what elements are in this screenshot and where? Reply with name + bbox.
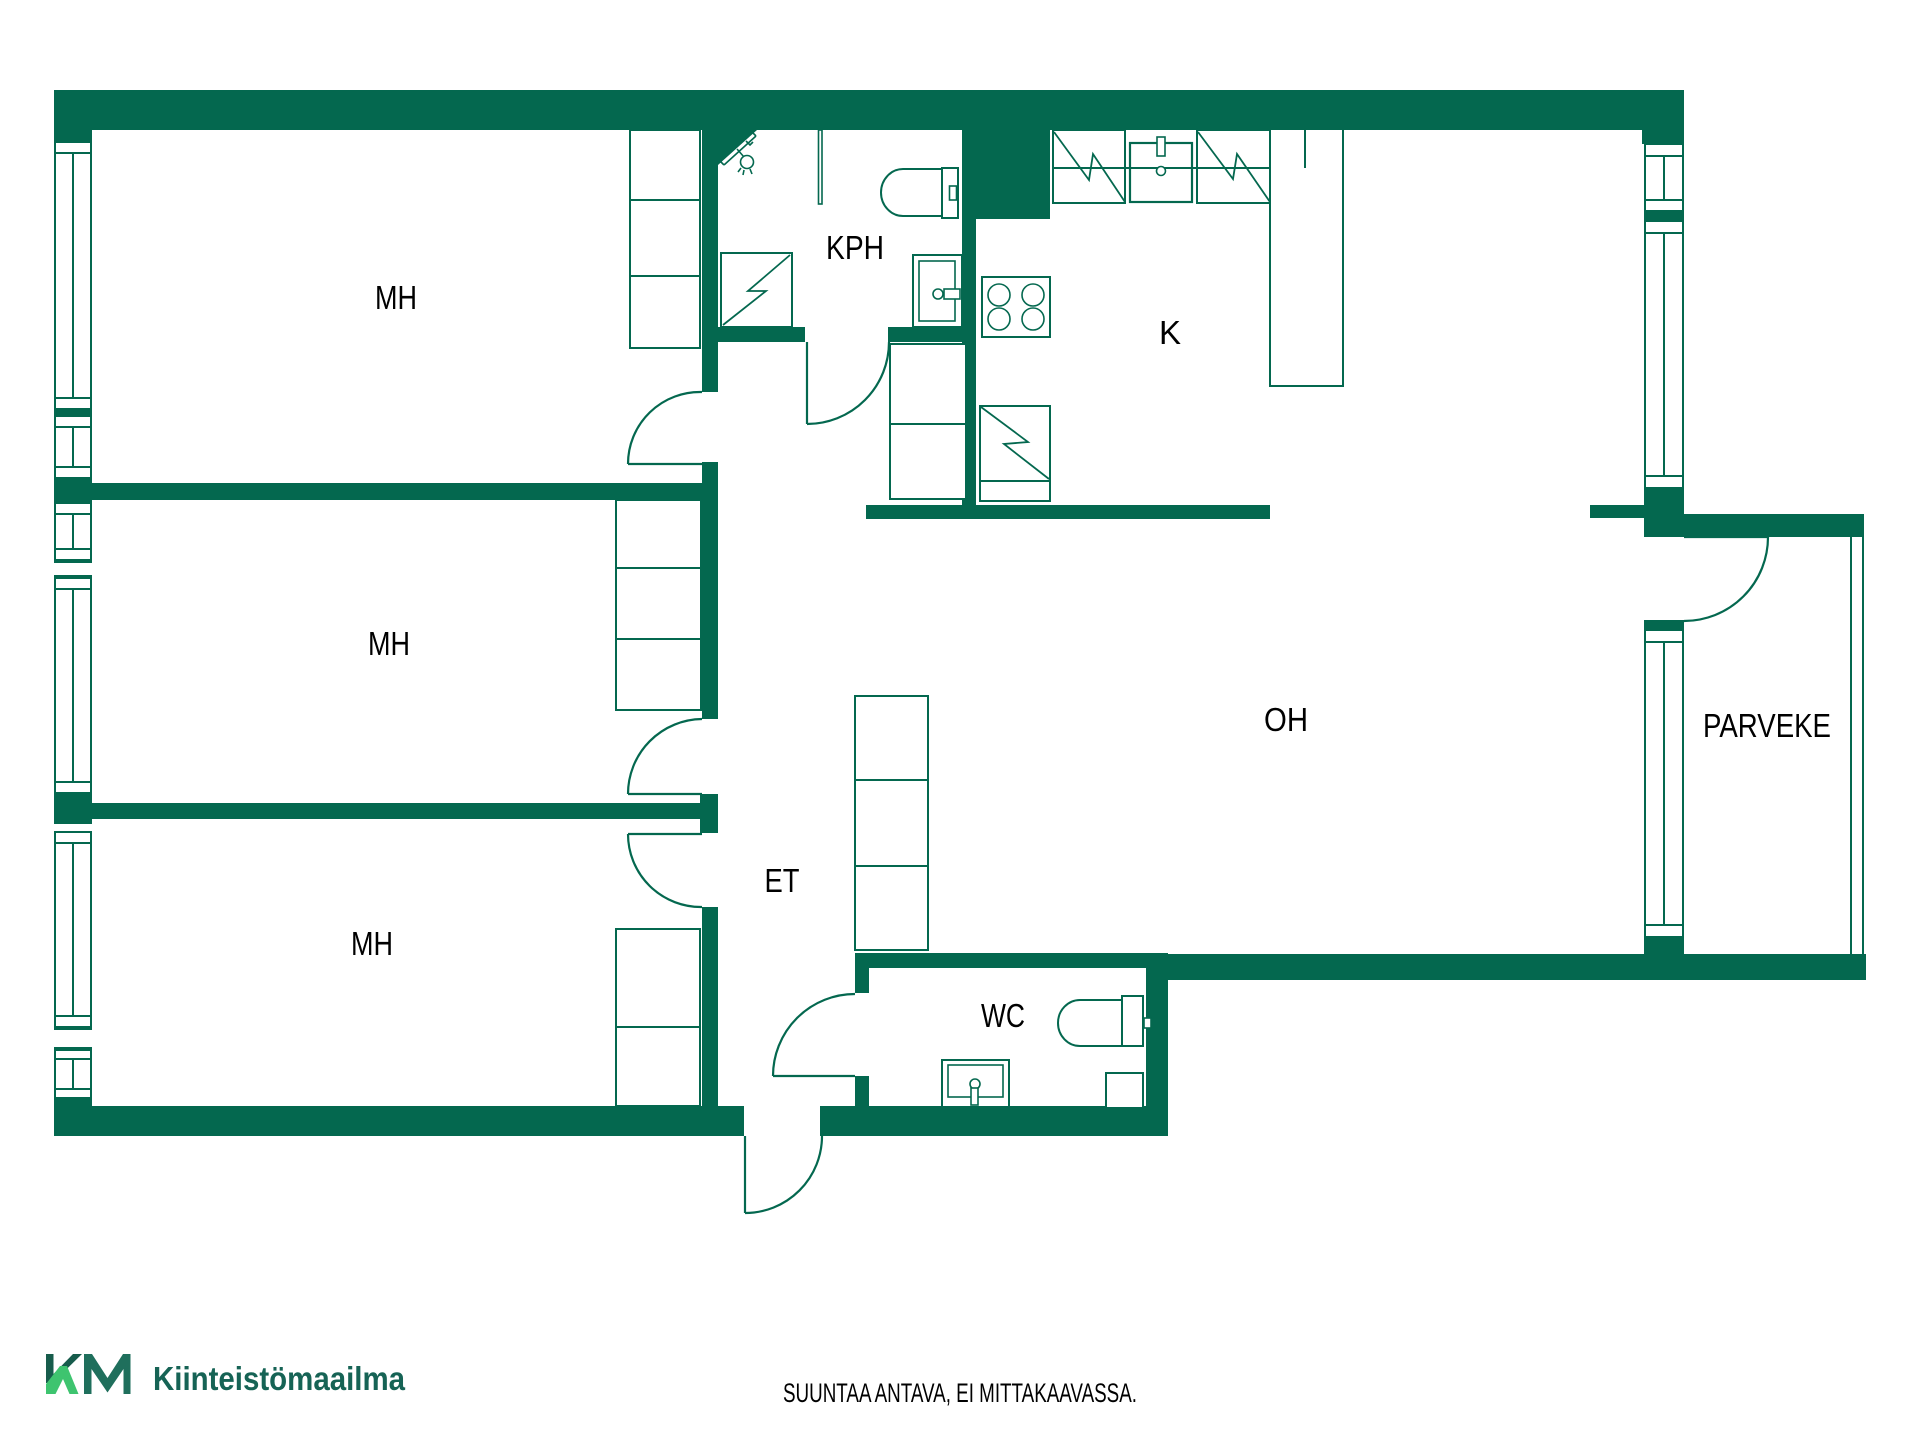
svg-text:MH: MH (375, 279, 417, 316)
svg-text:WC: WC (981, 997, 1025, 1034)
svg-text:OH: OH (1264, 701, 1308, 738)
svg-text:KPH: KPH (826, 229, 884, 266)
svg-text:SUUNTAA ANTAVA, EI MITTAKAAVAS: SUUNTAA ANTAVA, EI MITTAKAAVASSA. (783, 1378, 1137, 1408)
svg-text:MH: MH (368, 625, 410, 662)
svg-text:ET: ET (765, 862, 800, 899)
svg-text:Kiinteistömaailma: Kiinteistömaailma (153, 1360, 406, 1397)
svg-text:MH: MH (351, 925, 393, 962)
svg-text:K: K (1159, 314, 1181, 351)
svg-text:PARVEKE: PARVEKE (1703, 707, 1831, 744)
